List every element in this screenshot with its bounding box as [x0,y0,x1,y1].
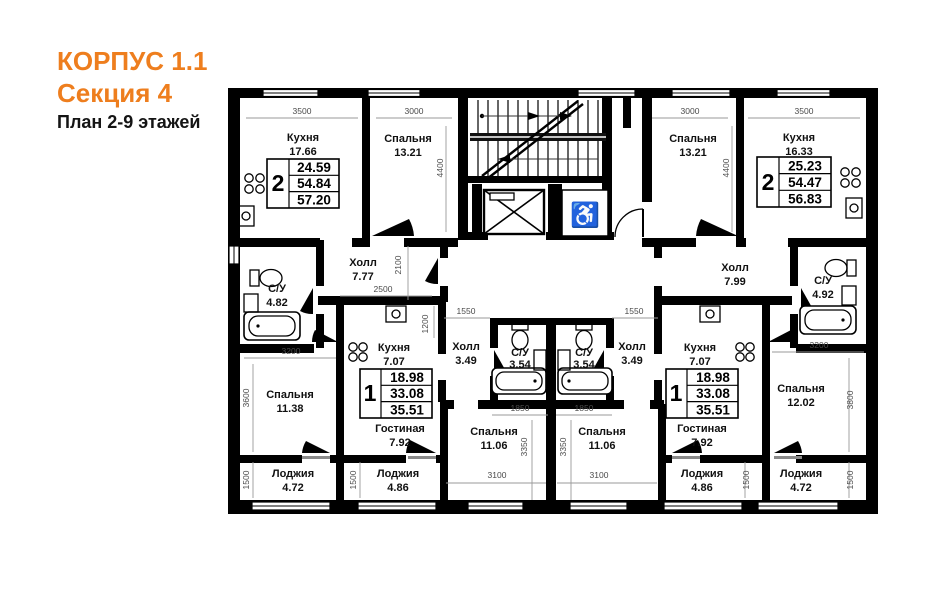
area-value: 54.84 [297,176,331,191]
room-area: 3.54 [573,359,595,371]
dim-label: 3200 [810,340,829,350]
room-area: 4.72 [282,482,303,494]
dim-label: 1500 [845,470,855,489]
window-left-1 [229,246,239,264]
area-value: 35.51 [390,403,424,418]
room-area: 3.49 [621,355,642,367]
dim-label: 3800 [845,390,855,409]
bathtub-icon [558,368,612,394]
room-count: 1 [364,380,377,406]
window-top-1 [263,90,318,97]
area-value: 18.98 [696,370,730,385]
summary-box-1k-left: 1 18.98 33.08 35.51 [360,369,432,418]
room-area: 11.06 [589,440,616,452]
room-area: 4.82 [266,297,287,309]
dim-label: 3350 [558,437,568,456]
room-label-bedroom: Спальня [777,383,825,395]
dim-label: 3100 [590,470,609,480]
room-count: 2 [272,170,285,196]
room-label-bedroom: Спальня [384,133,432,145]
summary-box-1k-right: 1 18.98 33.08 35.51 [666,369,738,418]
floor-plan: КОРПУС 1.1 Секция 4 План 2-9 этажей [0,0,941,600]
section-title: Секция 4 [57,78,173,108]
dim-label: 1500 [741,470,751,489]
summary-box-2k-right: 2 25.23 54.47 56.83 [757,157,831,207]
room-area: 17.66 [289,146,317,158]
room-area: 3.49 [455,355,476,367]
dim-label: 3000 [681,106,700,116]
room-count: 2 [762,169,775,195]
window-top-4 [672,90,730,97]
room-area: 11.06 [481,440,508,452]
room-area: 13.21 [679,147,707,159]
room-area: 7.07 [689,356,710,368]
dim-label: 1850 [575,403,594,413]
room-label-hall: Холл [452,341,480,353]
window-bottom-3 [468,502,523,510]
room-label-hall: Холл [721,262,749,274]
room-area: 13.21 [394,147,422,159]
area-value: 24.59 [297,160,331,175]
area-value: 54.47 [788,175,822,190]
area-value: 25.23 [788,159,822,174]
dim-label: 3000 [405,106,424,116]
dim-label: 2100 [393,255,403,274]
room-label-bathroom: С/У [511,347,529,359]
room-area: 4.92 [812,289,833,301]
room-label-bathroom: С/У [814,275,832,287]
room-label-kitchen: Кухня [287,132,319,144]
area-value: 35.51 [696,403,730,418]
elevator-icon [484,190,544,234]
dim-label: 1550 [625,306,644,316]
summary-box-2k-left: 2 24.59 54.84 57.20 [267,159,339,208]
area-value: 18.98 [390,370,424,385]
room-area: 4.72 [790,482,811,494]
bathtub-icon [800,306,856,334]
wheelchair-icon: ♿ [570,201,600,229]
room-label-loggia: Лоджия [377,468,419,480]
room-label-bathroom: С/У [575,347,593,359]
area-value: 33.08 [696,386,730,401]
dim-label: 3200 [282,346,301,356]
room-label-loggia: Лоджия [272,468,314,480]
room-label-bathroom: С/У [268,283,286,295]
window-bottom-4 [570,502,627,510]
room-label-bedroom: Спальня [266,389,314,401]
room-label-bedroom: Спальня [578,426,626,438]
dim-label: 3100 [488,470,507,480]
plan-title: План 2-9 этажей [57,112,200,132]
window-top-5 [777,90,830,97]
window-bottom-6 [758,502,838,510]
room-label-living: Гостиная [375,423,425,435]
dim-label: 2500 [374,284,393,294]
room-area: 7.77 [352,271,373,283]
window-bottom-5 [664,502,742,510]
dim-label: 4400 [721,158,731,177]
room-label-hall: Холл [618,341,646,353]
window-top-2 [368,90,420,97]
room-area: 11.38 [277,403,304,415]
room-label-loggia: Лоджия [681,468,723,480]
dim-label: 3600 [241,388,251,407]
room-area: 4.86 [387,482,408,494]
room-area: 16.33 [785,146,813,158]
room-label-bedroom: Спальня [669,133,717,145]
room-area: 7.92 [691,437,712,449]
dim-label: 1200 [420,314,430,333]
area-value: 57.20 [297,193,331,208]
room-area: 7.92 [389,437,410,449]
dim-label: 3350 [519,437,529,456]
dim-label: 1550 [457,306,476,316]
accessible-lift-room: ♿ [562,190,608,236]
room-label-kitchen: Кухня [378,342,410,354]
window-bottom-1 [252,502,330,510]
window-bottom-2 [358,502,436,510]
bathtub-icon [492,368,546,394]
window-top-3 [578,90,635,97]
room-area: 4.86 [691,482,712,494]
room-label-loggia: Лоджия [780,468,822,480]
floor-plan-page: КОРПУС 1.1 Секция 4 План 2-9 этажей [0,0,941,600]
area-value: 33.08 [390,386,424,401]
room-area: 12.02 [787,397,815,409]
building-title: КОРПУС 1.1 [57,46,207,76]
area-value: 56.83 [788,192,822,207]
room-label-kitchen: Кухня [783,132,815,144]
room-area: 3.54 [509,359,531,371]
room-area: 7.07 [383,356,404,368]
dim-label: 1500 [241,470,251,489]
room-label-living: Гостиная [677,423,727,435]
room-count: 1 [670,380,683,406]
dim-label: 1850 [511,403,530,413]
room-label-kitchen: Кухня [684,342,716,354]
room-label-hall: Холл [349,257,377,269]
bathtub-icon [244,312,300,340]
room-area: 7.99 [724,276,745,288]
room-label-bedroom: Спальня [470,426,518,438]
dim-label: 1500 [348,470,358,489]
dim-label: 4400 [435,158,445,177]
dim-label: 3500 [293,106,312,116]
dim-label: 3500 [795,106,814,116]
